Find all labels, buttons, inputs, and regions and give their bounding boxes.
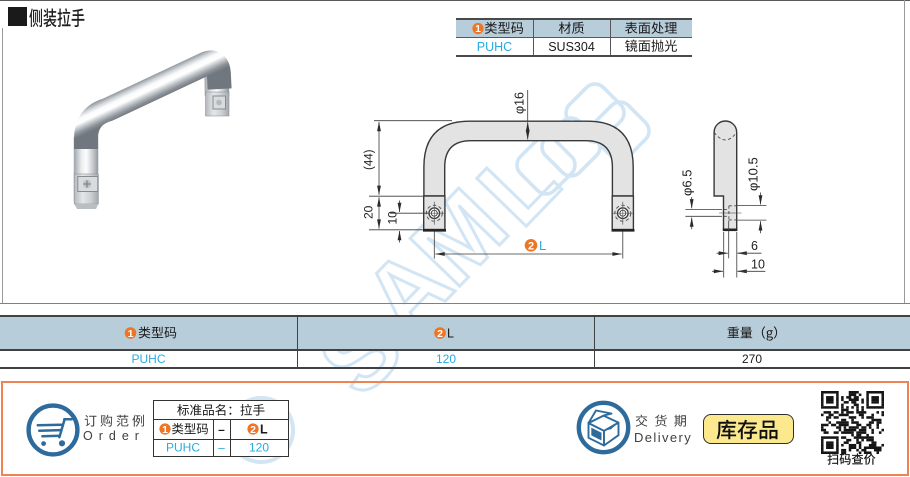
svg-text:L: L [260,423,268,437]
svg-text:PUHC: PUHC [166,441,200,455]
svg-text:2: 2 [528,241,534,253]
svg-text:10: 10 [386,211,400,225]
svg-text:120: 120 [249,441,269,455]
svg-text:PUHC: PUHC [477,40,512,54]
svg-text:2: 2 [250,424,256,436]
svg-text:1: 1 [128,328,134,340]
svg-text:φ6.5: φ6.5 [680,169,695,196]
svg-text:1: 1 [475,23,481,35]
svg-text:2: 2 [437,328,443,340]
svg-text:120: 120 [436,352,456,366]
svg-text:L: L [447,327,454,341]
svg-text:L: L [539,238,546,253]
svg-text:PUHC: PUHC [131,352,165,366]
svg-text:φ16: φ16 [513,92,527,114]
svg-text:10: 10 [751,257,765,271]
svg-text:1: 1 [162,424,168,436]
svg-text:6: 6 [751,239,758,253]
svg-text:SUS304: SUS304 [548,40,595,54]
svg-text:φ10.5: φ10.5 [746,157,761,191]
svg-text:–: – [218,441,225,455]
svg-text:20: 20 [362,205,376,219]
svg-text:(44): (44) [364,149,376,170]
svg-text:270: 270 [742,352,762,366]
svg-text:–: – [218,423,225,437]
